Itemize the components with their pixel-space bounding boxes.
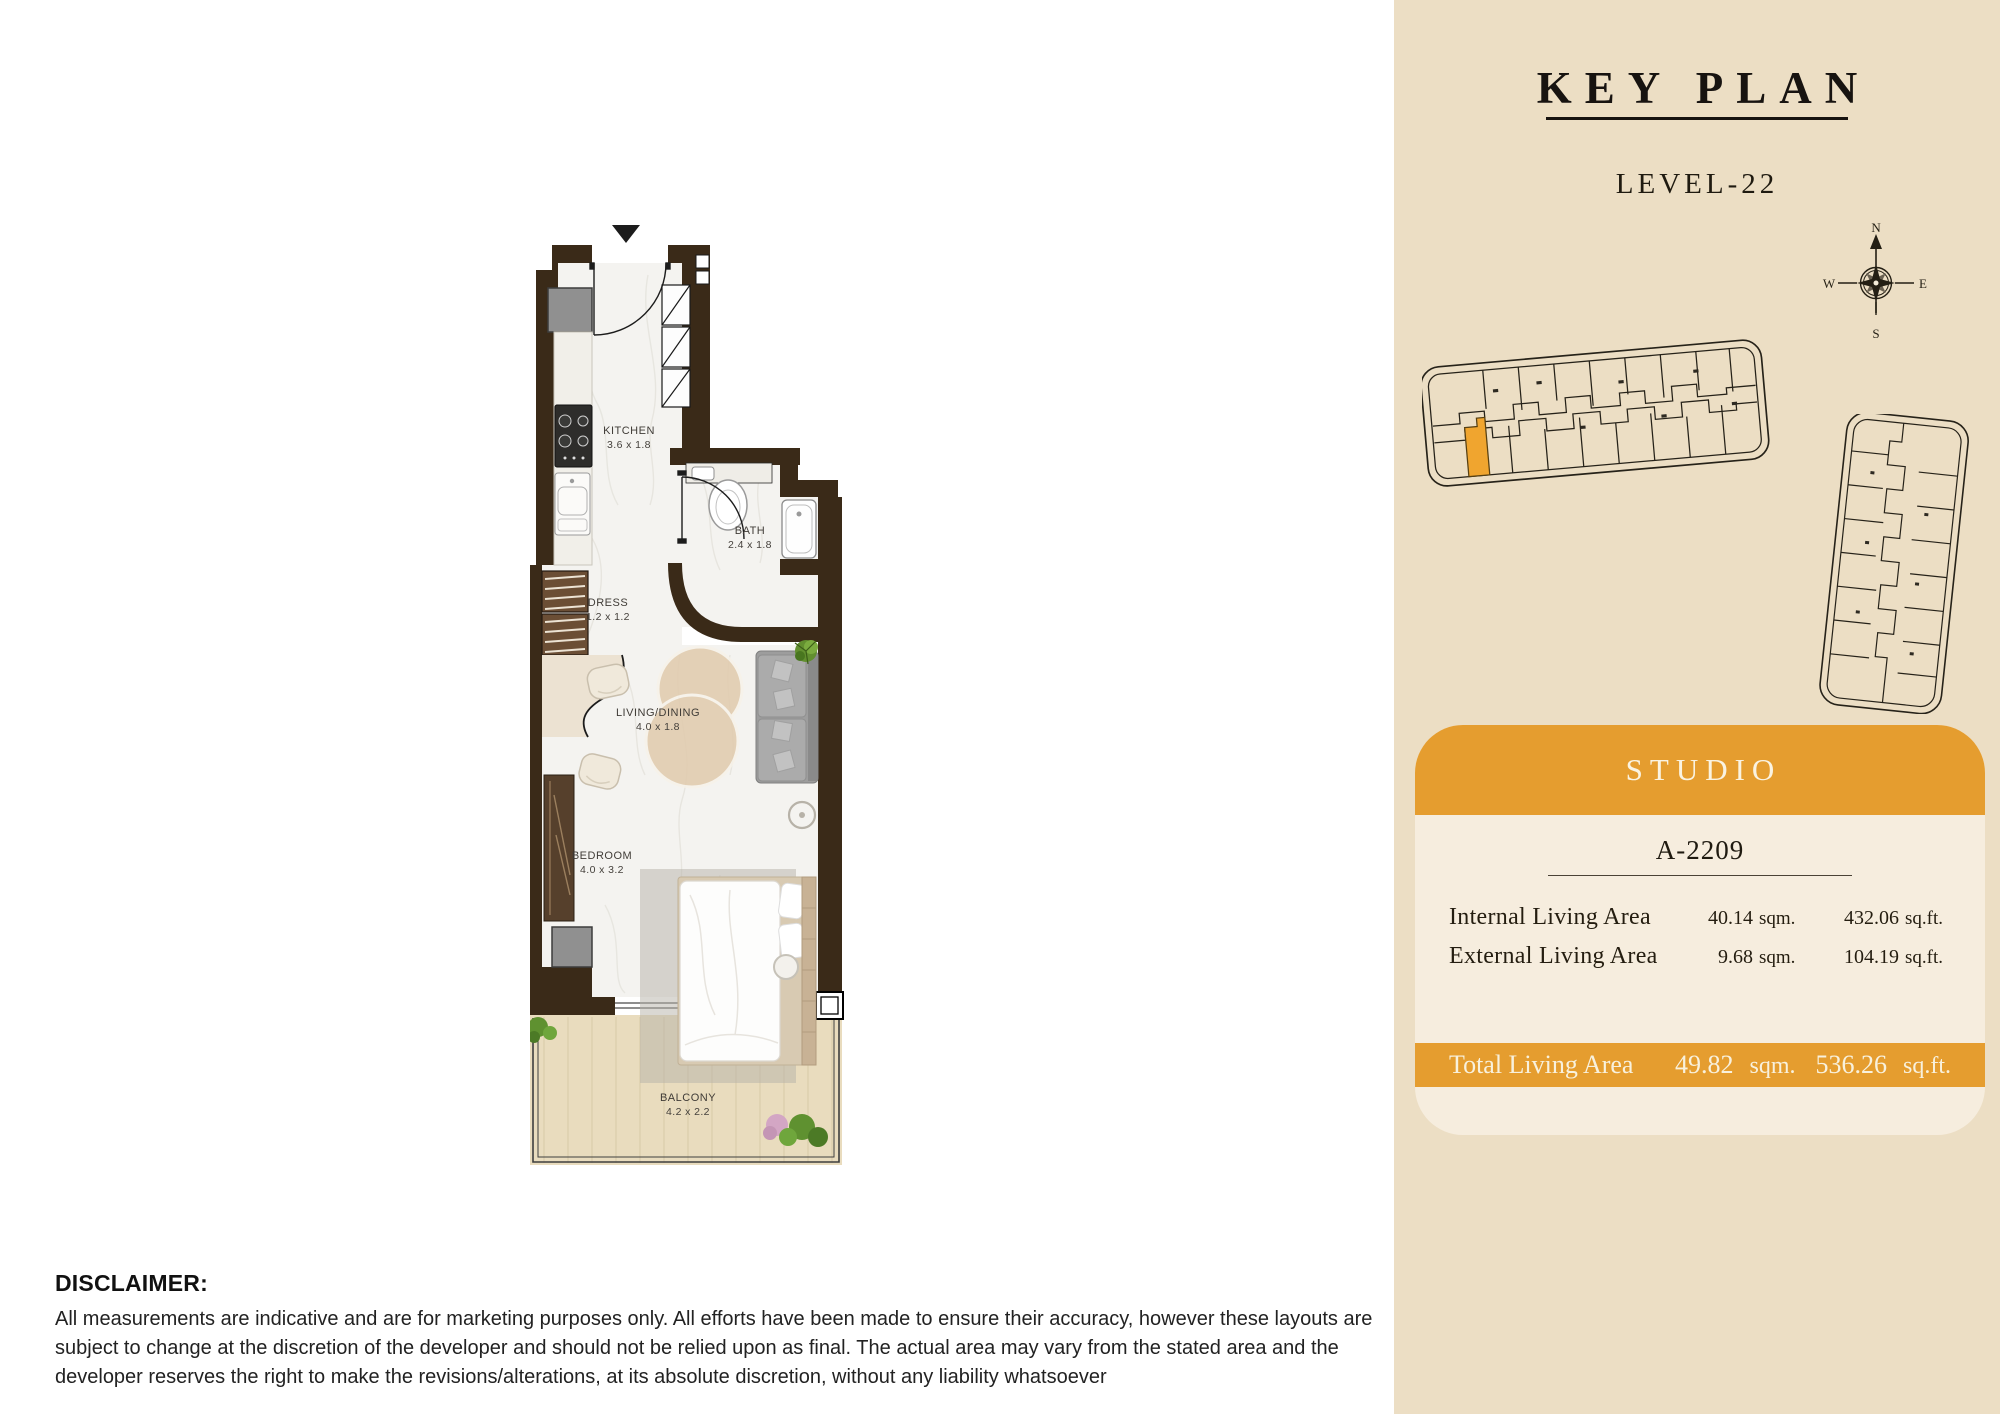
dims-kitchen: 3.6 x 1.8: [607, 439, 651, 451]
label-kitchen: KITCHEN: [603, 425, 655, 437]
balcony-column: [816, 992, 843, 1019]
area-rows: Internal Living Area 40.14 sqm. 432.06 s…: [1415, 904, 1985, 970]
unit-type-label: STUDIO: [1619, 752, 1782, 788]
unit-number-block: A-2209: [1415, 835, 1985, 876]
kitchen-sink-icon: [555, 473, 590, 535]
total-sqm-unit: sqm.: [1749, 1053, 1795, 1080]
internal-area-row: Internal Living Area 40.14 sqm. 432.06 s…: [1449, 904, 1959, 931]
internal-area-sqm: 40.14: [1681, 907, 1753, 930]
label-living-dining: LIVING/DINING: [616, 707, 700, 719]
shaft-top: [548, 288, 592, 332]
label-bedroom: BEDROOM: [572, 850, 632, 862]
dims-living-dining: 4.0 x 1.8: [636, 721, 680, 733]
highlighted-unit: [1464, 417, 1490, 476]
floor-plan: KITCHEN 3.6 x 1.8 BATH 2.4 x 1.8 DRESS 1…: [530, 175, 870, 1175]
compass-icon: N E S W: [1816, 223, 1936, 343]
title-underline: [1546, 117, 1848, 120]
external-area-sqft-unit: sq.ft.: [1899, 947, 1959, 969]
unit-number: A-2209: [1656, 835, 1745, 866]
internal-area-sqm-unit: sqm.: [1753, 908, 1815, 930]
key-plan-title: KEY PLAN: [1394, 62, 2000, 120]
compass-w: W: [1823, 276, 1836, 291]
external-area-row: External Living Area 9.68 sqm. 104.19 sq…: [1449, 943, 1959, 970]
hall-closet: [662, 285, 690, 407]
total-sqft-unit: sq.ft.: [1903, 1053, 1951, 1080]
label-bath: BATH: [735, 525, 766, 537]
disclaimer-title: DISCLAIMER:: [55, 1270, 1375, 1297]
key-plan-panel: KEY PLAN LEVEL-22 N E S W: [1394, 0, 2000, 1414]
unit-type-header: STUDIO: [1415, 725, 1985, 815]
label-balcony: BALCONY: [660, 1092, 716, 1104]
total-sqft: 536.26: [1816, 1050, 1888, 1080]
internal-area-label: Internal Living Area: [1449, 904, 1681, 931]
total-area-values: 49.82 sqm. 536.26 sq.ft.: [1665, 1050, 1951, 1080]
page: KITCHEN 3.6 x 1.8 BATH 2.4 x 1.8 DRESS 1…: [0, 0, 2000, 1414]
external-area-label: External Living Area: [1449, 943, 1681, 970]
bed: [678, 877, 816, 1065]
bedroom-wardrobe: [544, 775, 574, 921]
compass-n: N: [1871, 223, 1881, 235]
bathtub-icon: [782, 500, 816, 558]
total-sqm: 49.82: [1675, 1050, 1734, 1080]
unit-number-underline: [1548, 875, 1852, 876]
external-area-sqm: 9.68: [1681, 946, 1753, 969]
disclaimer-body: All measurements are indicative and are …: [55, 1305, 1375, 1392]
label-dress: DRESS: [588, 597, 628, 609]
key-plan-building-a: [1422, 328, 1770, 500]
dims-balcony: 4.2 x 2.2: [666, 1106, 710, 1118]
compass-s: S: [1872, 326, 1879, 341]
entrance-arrow-icon: [612, 225, 640, 243]
dims-bedroom: 4.0 x 3.2: [580, 864, 624, 876]
key-plan-building-b: [1818, 414, 1970, 714]
disclaimer: DISCLAIMER: All measurements are indicat…: [55, 1270, 1375, 1392]
internal-area-sqft: 432.06: [1815, 907, 1899, 930]
kitchen-counter: [554, 332, 592, 565]
dims-dress: 1.2 x 1.2: [586, 611, 630, 623]
external-area-sqm-unit: sqm.: [1753, 947, 1815, 969]
level-label: LEVEL-22: [1394, 168, 2000, 201]
key-plan-title-text: KEY PLAN: [1394, 62, 2000, 114]
total-area-label: Total Living Area: [1449, 1050, 1633, 1080]
shaft-bottom: [552, 927, 592, 967]
unit-info-card: STUDIO A-2209 Internal Living Area 40.14…: [1415, 725, 1985, 1135]
external-area-sqft: 104.19: [1815, 946, 1899, 969]
internal-area-sqft-unit: sq.ft.: [1899, 908, 1959, 930]
sofa: [756, 651, 818, 783]
stove-icon: [555, 405, 592, 467]
dims-bath: 2.4 x 1.8: [728, 539, 772, 551]
compass-e: E: [1919, 276, 1927, 291]
total-area-bar: Total Living Area 49.82 sqm. 536.26 sq.f…: [1415, 1043, 1985, 1087]
